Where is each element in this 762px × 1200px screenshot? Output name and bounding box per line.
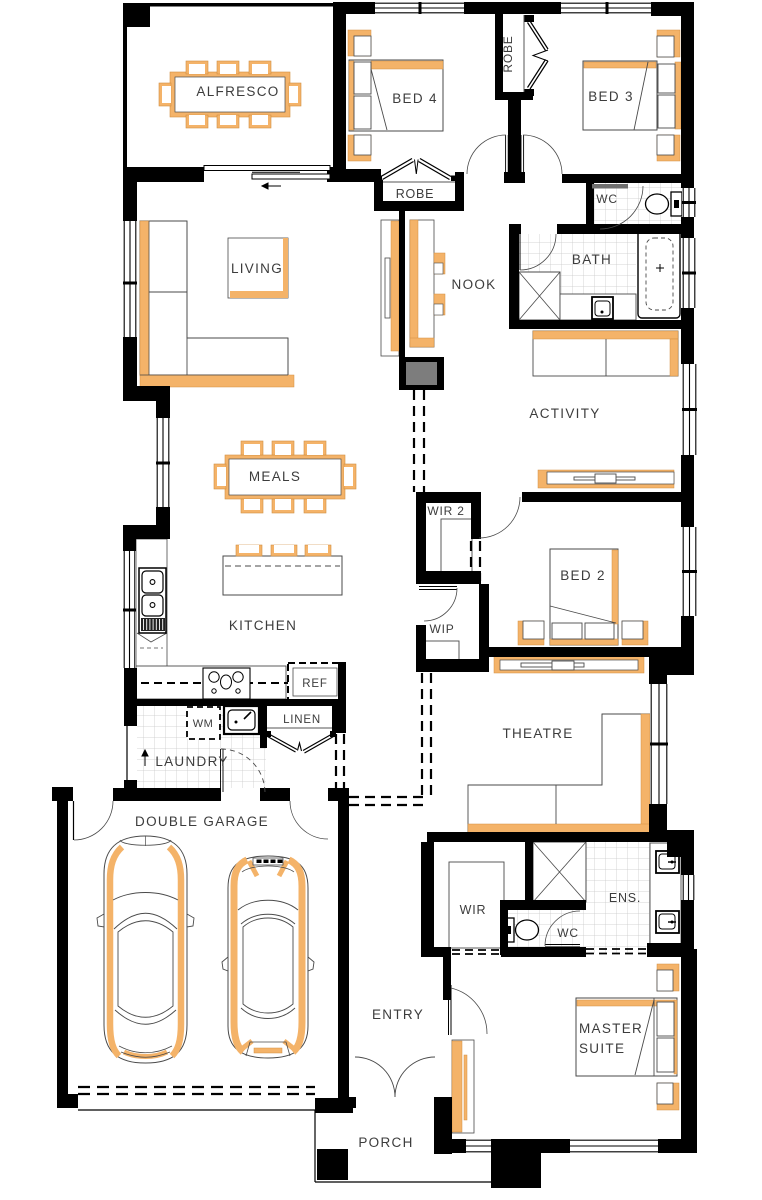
svg-text:BED 2: BED 2 (560, 568, 606, 583)
svg-text:SUITE: SUITE (579, 1041, 625, 1056)
svg-text:BED 3: BED 3 (588, 89, 634, 104)
svg-text:WC: WC (596, 192, 618, 206)
svg-text:BED 4: BED 4 (392, 91, 438, 106)
svg-text:ROBE: ROBE (396, 187, 435, 201)
svg-text:KITCHEN: KITCHEN (229, 618, 297, 633)
svg-text:DOUBLE GARAGE: DOUBLE GARAGE (135, 814, 269, 829)
svg-text:ENTRY: ENTRY (372, 1007, 424, 1022)
svg-text:ROBE: ROBE (501, 35, 515, 72)
svg-text:LAUNDRY: LAUNDRY (155, 754, 228, 769)
svg-text:ALFRESCO: ALFRESCO (196, 84, 279, 99)
svg-text:LIVING: LIVING (231, 261, 283, 276)
svg-text:LINEN: LINEN (283, 714, 321, 726)
svg-text:MASTER: MASTER (579, 1021, 643, 1036)
svg-text:BATH: BATH (572, 252, 612, 267)
svg-text:PORCH: PORCH (358, 1135, 413, 1150)
svg-text:WIR 2: WIR 2 (427, 504, 464, 518)
svg-text:WM: WM (193, 718, 214, 730)
svg-text:WIR: WIR (460, 903, 487, 917)
svg-text:NOOK: NOOK (452, 277, 497, 292)
svg-text:ENS.: ENS. (609, 891, 641, 905)
svg-text:THEATRE: THEATRE (502, 726, 573, 741)
svg-text:WIP: WIP (429, 622, 454, 636)
svg-text:ACTIVITY: ACTIVITY (529, 406, 600, 421)
svg-text:WC: WC (557, 926, 579, 940)
svg-text:REF: REF (302, 678, 327, 690)
svg-text:MEALS: MEALS (249, 469, 301, 484)
